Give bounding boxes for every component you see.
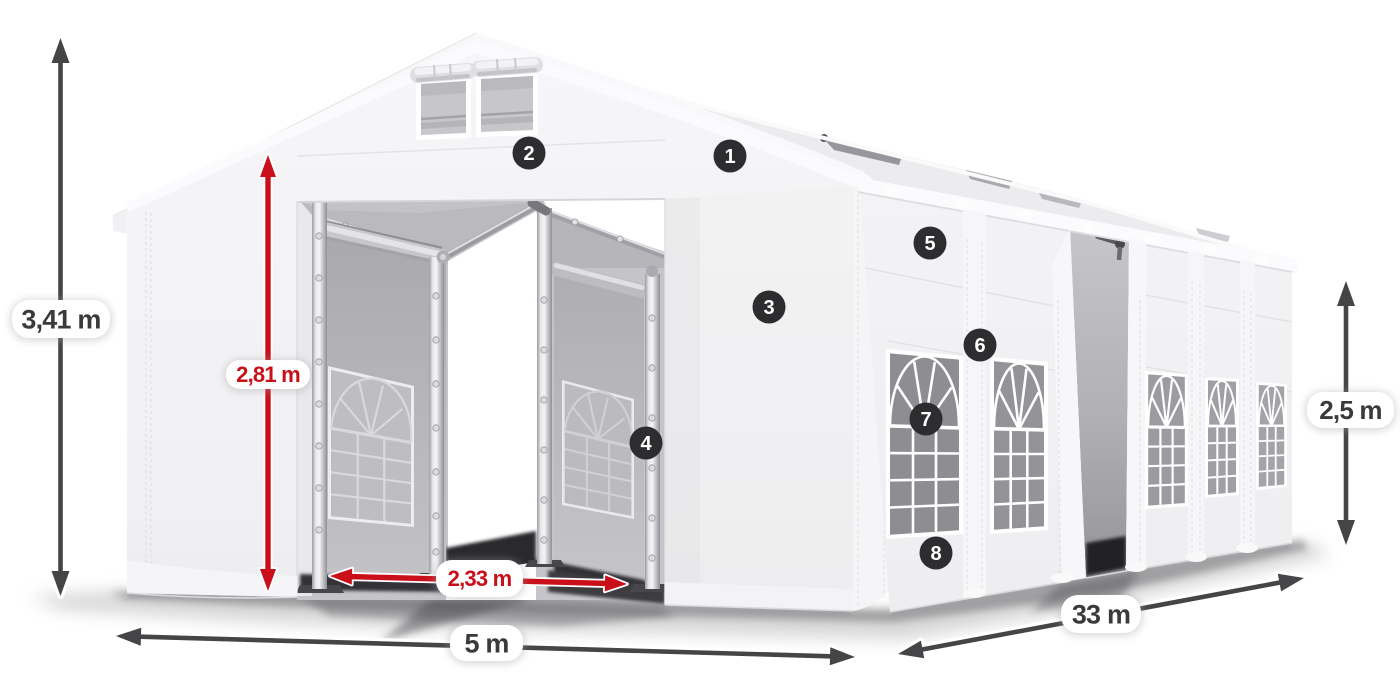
svg-text:6: 6 — [974, 335, 985, 357]
svg-text:2,81 m: 2,81 m — [236, 362, 300, 387]
svg-text:2: 2 — [523, 143, 534, 165]
svg-text:5: 5 — [924, 233, 935, 255]
svg-text:7: 7 — [920, 409, 931, 431]
svg-text:3: 3 — [763, 297, 774, 319]
svg-text:1: 1 — [724, 146, 735, 168]
svg-text:2,33 m: 2,33 m — [448, 566, 512, 591]
svg-text:5 m: 5 m — [464, 629, 508, 659]
svg-text:4: 4 — [640, 433, 652, 455]
svg-text:2,5 m: 2,5 m — [1319, 395, 1382, 425]
svg-text:33 m: 33 m — [1072, 600, 1130, 630]
svg-text:3,41 m: 3,41 m — [21, 304, 100, 334]
svg-text:8: 8 — [930, 543, 941, 565]
